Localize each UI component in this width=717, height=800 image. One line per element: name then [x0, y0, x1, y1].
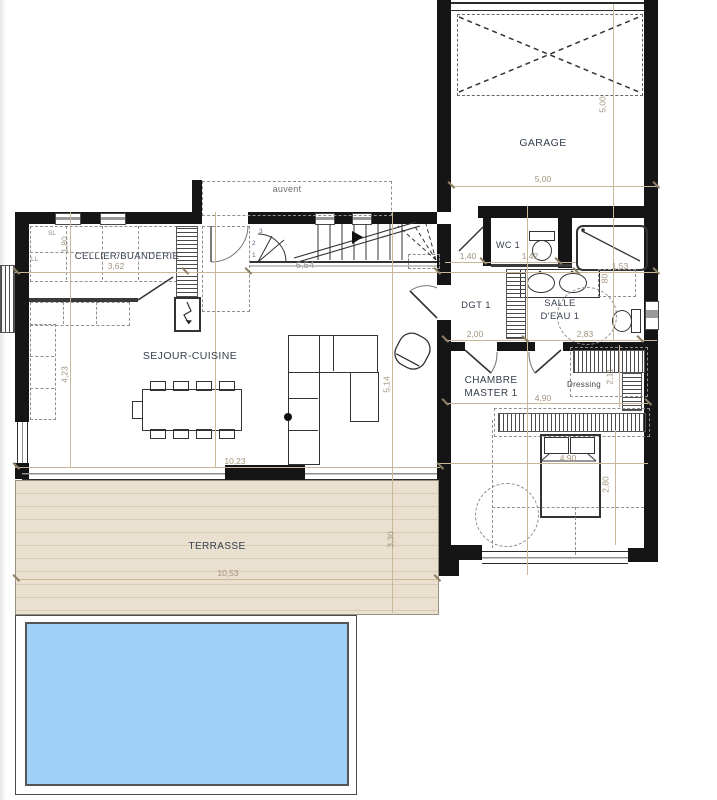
room-label-garage: GARAGE [493, 137, 593, 149]
counter-divider [30, 388, 54, 389]
toilet-icon [631, 309, 641, 333]
appliance-column [176, 226, 198, 298]
pool [25, 622, 349, 786]
toilet-icon [612, 310, 632, 332]
hatch-block [0, 265, 15, 333]
page-edge [0, 0, 6, 800]
window [100, 213, 126, 225]
door-leaf [410, 291, 437, 318]
stair-direction-arrow [352, 231, 363, 244]
dimension-line [70, 212, 71, 468]
dimension-line [15, 579, 437, 580]
label-ll: LL [31, 256, 38, 263]
room-label-salle-eau: SALLE D'EAU 1 [526, 297, 594, 323]
dim-stairs: 6,54 [283, 261, 327, 270]
room-label-line: SALLE [544, 298, 576, 309]
dimension-line [445, 262, 576, 263]
wall-segment [437, 558, 459, 576]
chair-icon [196, 429, 212, 439]
entry-lobby-outline [202, 226, 250, 312]
dining-table-icon [142, 389, 242, 431]
floor-plan: 5,00 5,00 3,62 1,80 6,54 1,40 1,42 1,53 … [0, 0, 717, 800]
room-label-terrasse: TERRASSE [177, 541, 257, 552]
door-arc [410, 286, 437, 291]
wall-segment [491, 264, 572, 267]
guide-line [575, 507, 576, 555]
chair-icon [196, 381, 212, 391]
dim-cellier-width: 3,62 [96, 262, 136, 271]
door-leaf [465, 350, 491, 373]
dim-shower-niche: 80 [601, 269, 610, 289]
dimension-line [15, 272, 657, 273]
door-arc [491, 352, 497, 373]
lamp-dot-icon [284, 413, 292, 421]
dim-sejour-b: 5,14 [383, 368, 392, 402]
kitchen-counter-outline [30, 324, 56, 420]
dim-wc-a: 1,40 [450, 252, 486, 261]
electrical-panel-icon [174, 297, 201, 332]
room-label-auvent: auvent [252, 184, 322, 194]
dim-terrasse-width: 10,53 [203, 569, 253, 578]
stair-step-number: 2 [252, 240, 256, 247]
dimension-line [445, 403, 648, 404]
clearance-circle [475, 483, 539, 547]
dimension-line [613, 4, 614, 340]
plumbing-wall-hatch [506, 269, 526, 339]
chair-icon [150, 381, 166, 391]
door-arc [529, 352, 535, 373]
dim-terrasse-height: 3,30 [387, 523, 396, 557]
wall-segment [192, 180, 202, 224]
pillow-icon [544, 437, 569, 454]
chair-icon [150, 429, 166, 439]
counter-divider [63, 302, 64, 324]
dimension-line [619, 345, 620, 407]
window [645, 301, 659, 330]
stair-step-number: 1 [252, 252, 256, 259]
sofa-divider [289, 430, 318, 431]
closet-outline [494, 408, 650, 437]
dim-salle-eau: 2,83 [565, 330, 605, 339]
wall-segment [497, 342, 535, 351]
chair-icon [173, 429, 189, 439]
dim-sejour-width: 10,23 [210, 457, 260, 466]
armchair-icon [390, 329, 434, 374]
room-label-line: CHAMBRE [465, 375, 518, 386]
dim-dgt: 2,00 [455, 330, 495, 339]
garage-door-line [451, 2, 644, 11]
dimension-line [451, 186, 657, 187]
dimension-line [445, 340, 657, 341]
window [17, 422, 28, 464]
room-label-cellier: CELLIER/BUANDERIE [72, 251, 182, 262]
dim-bed-span: 4,90 [548, 454, 588, 463]
sofa-icon [288, 335, 320, 465]
coffee-table-icon [350, 372, 379, 422]
door-leaf [459, 227, 483, 251]
room-label-dressing: Dressing [558, 380, 610, 389]
room-label-line: D'EAU 1 [541, 311, 580, 322]
wall-segment [445, 342, 465, 351]
dim-wc-b: 1,42 [512, 252, 548, 261]
wall-segment [437, 320, 451, 548]
chair-icon [132, 401, 143, 419]
dimension-line [215, 212, 216, 468]
chair-icon [219, 429, 235, 439]
chair-icon [173, 381, 189, 391]
sofa-divider [333, 336, 334, 371]
dimension-line [15, 467, 440, 468]
dimension-line [437, 463, 648, 464]
wall-segment [628, 548, 658, 562]
counter-divider [96, 302, 97, 324]
dim-sejour-a: 4,23 [61, 358, 70, 392]
garage-opening-dashed [457, 14, 643, 96]
dim-garage-depth: 5,00 [599, 85, 608, 125]
counter-divider [30, 356, 54, 357]
room-label-line: MASTER 1 [464, 388, 517, 399]
dim-chambre-height: 2,80 [602, 468, 611, 502]
dim-garage-width: 5,00 [520, 175, 566, 184]
door-leaf [535, 350, 561, 373]
room-label-dgt1: DGT 1 [450, 300, 502, 311]
kitchen-counter-outline [30, 302, 130, 326]
room-label-sejour: SEJOUR-CUISINE [140, 350, 240, 362]
sink-icon [527, 273, 555, 293]
dim-cellier-height: 1,80 [61, 228, 70, 262]
pillow-icon [570, 437, 595, 454]
wall-segment [478, 206, 644, 218]
sliding-window [482, 551, 628, 564]
wall-segment [15, 212, 29, 422]
stair-step-number: 3 [259, 228, 263, 235]
label-sl: SL [48, 230, 56, 237]
room-label-wc1: WC 1 [490, 240, 526, 250]
room-label-chambre: CHAMBRE MASTER 1 [452, 374, 530, 400]
sofa-divider [289, 398, 318, 399]
window [55, 213, 81, 225]
dimension-line [615, 430, 616, 545]
chair-icon [219, 381, 235, 391]
